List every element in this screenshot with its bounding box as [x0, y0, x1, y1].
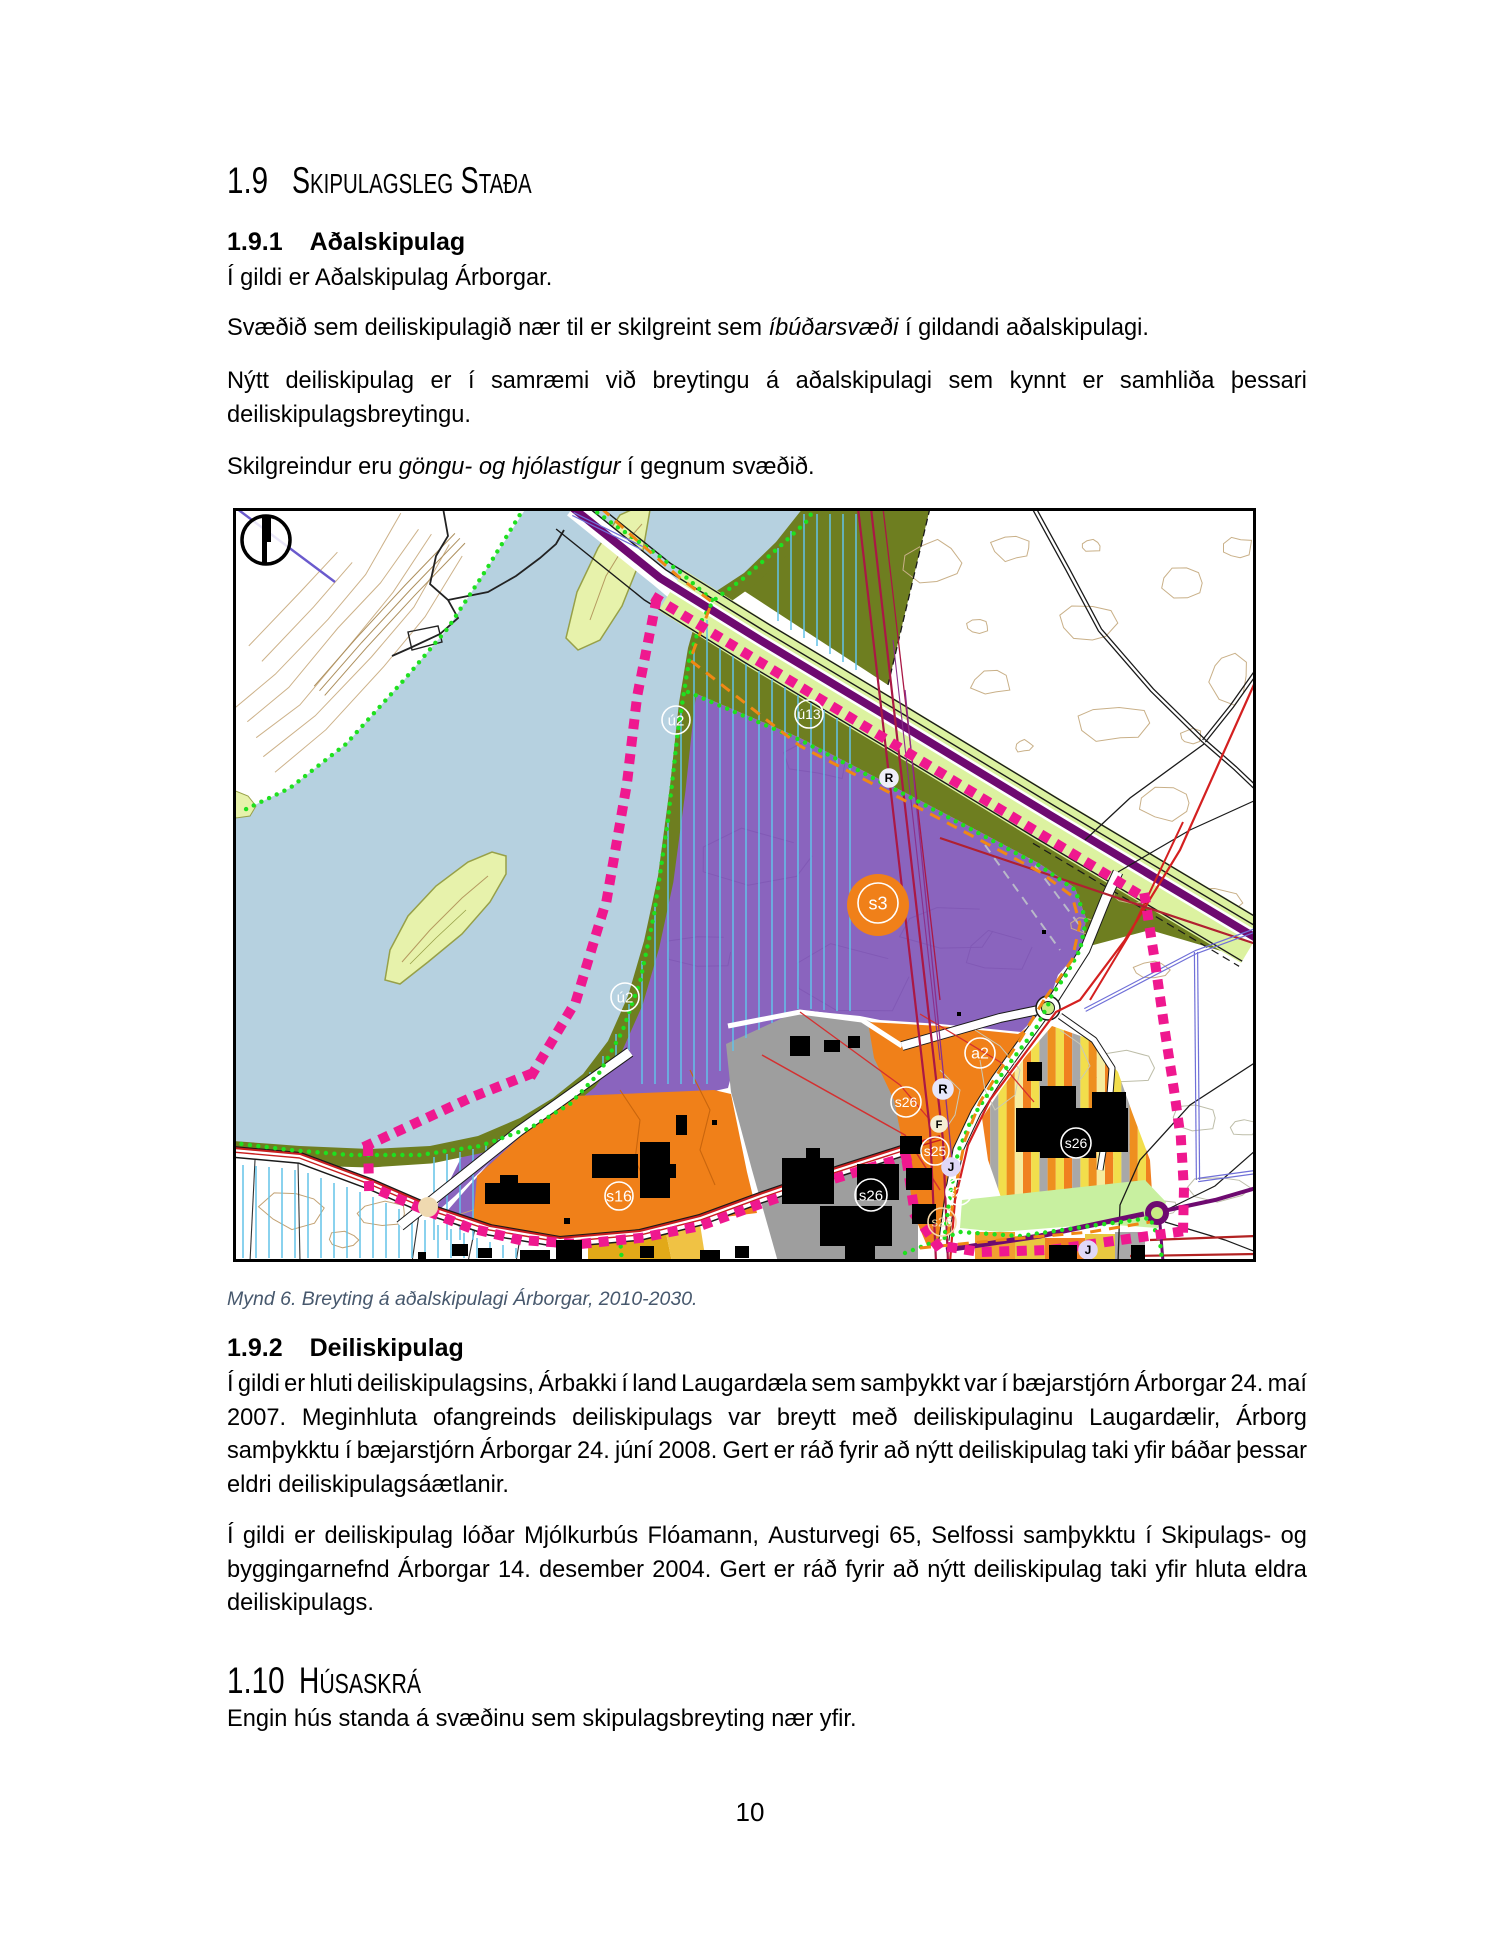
svg-text:s26: s26 — [1065, 1135, 1088, 1151]
svg-text:s16: s16 — [606, 1189, 632, 1206]
svg-text:F: F — [936, 1119, 943, 1131]
svg-text:ú2: ú2 — [668, 712, 685, 729]
svg-text:R: R — [885, 771, 894, 785]
svg-text:s25: s25 — [949, 1185, 970, 1200]
svg-text:s25: s25 — [924, 1143, 947, 1159]
svg-text:ú13: ú13 — [797, 706, 821, 722]
svg-text:s26: s26 — [859, 1187, 883, 1204]
svg-text:R: R — [938, 1082, 948, 1097]
svg-text:ú2: ú2 — [617, 989, 634, 1006]
svg-text:J: J — [948, 1160, 955, 1174]
svg-text:s3: s3 — [868, 893, 887, 913]
svg-text:a2: a2 — [971, 1046, 989, 1063]
svg-text:J: J — [1085, 1243, 1092, 1257]
svg-text:s26: s26 — [895, 1094, 918, 1110]
svg-text:s26: s26 — [932, 1215, 953, 1230]
